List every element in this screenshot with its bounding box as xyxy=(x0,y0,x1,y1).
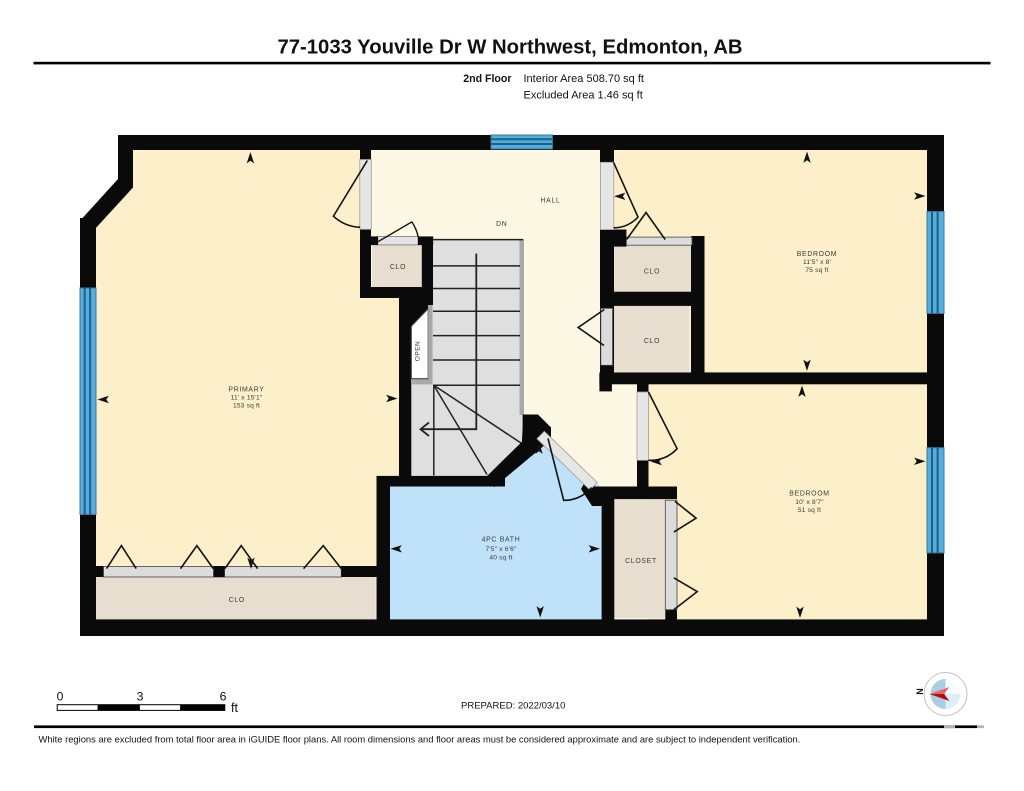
svg-text:3: 3 xyxy=(137,690,144,704)
svg-text:CLO: CLO xyxy=(644,269,660,276)
svg-text:Interior Area 508.70 sq ft: Interior Area 508.70 sq ft xyxy=(524,73,644,85)
svg-text:CLOSET: CLOSET xyxy=(625,558,657,565)
svg-text:BEDROOM: BEDROOM xyxy=(789,491,830,498)
svg-text:PREPARED: 2022/03/10: PREPARED: 2022/03/10 xyxy=(461,701,565,712)
svg-text:6: 6 xyxy=(220,690,227,704)
svg-text:CLO: CLO xyxy=(229,597,245,604)
svg-text:77-1033 Youville Dr W Northwes: 77-1033 Youville Dr W Northwest, Edmonto… xyxy=(277,37,742,59)
svg-text:N: N xyxy=(915,688,925,695)
svg-text:11'5" x 8': 11'5" x 8' xyxy=(803,259,831,266)
svg-text:BEDROOM: BEDROOM xyxy=(797,251,838,258)
svg-text:7'5" x 6'6": 7'5" x 6'6" xyxy=(485,546,516,553)
svg-text:0: 0 xyxy=(57,690,64,704)
svg-text:White regions are excluded fro: White regions are excluded from total fl… xyxy=(39,734,801,745)
svg-text:10' x 8'7": 10' x 8'7" xyxy=(795,499,824,506)
svg-text:40 sq ft: 40 sq ft xyxy=(489,555,512,562)
svg-text:DN: DN xyxy=(496,221,507,228)
svg-text:CLO: CLO xyxy=(390,264,406,271)
svg-text:PRIMARY: PRIMARY xyxy=(228,387,264,394)
svg-text:153 sq ft: 153 sq ft xyxy=(233,403,260,410)
svg-text:Excluded Area 1.46 sq ft: Excluded Area 1.46 sq ft xyxy=(524,90,643,102)
svg-text:ft: ft xyxy=(231,701,238,715)
svg-text:CLO: CLO xyxy=(644,338,660,345)
svg-text:2nd Floor: 2nd Floor xyxy=(463,73,511,85)
svg-text:75 sq ft: 75 sq ft xyxy=(805,267,828,274)
svg-text:HALL: HALL xyxy=(540,197,560,204)
svg-text:51 sq ft: 51 sq ft xyxy=(798,507,821,514)
svg-text:OPEN: OPEN xyxy=(415,341,422,361)
svg-text:4PC BATH: 4PC BATH xyxy=(482,537,521,544)
svg-text:11' x 15'1": 11' x 15'1" xyxy=(231,395,263,402)
